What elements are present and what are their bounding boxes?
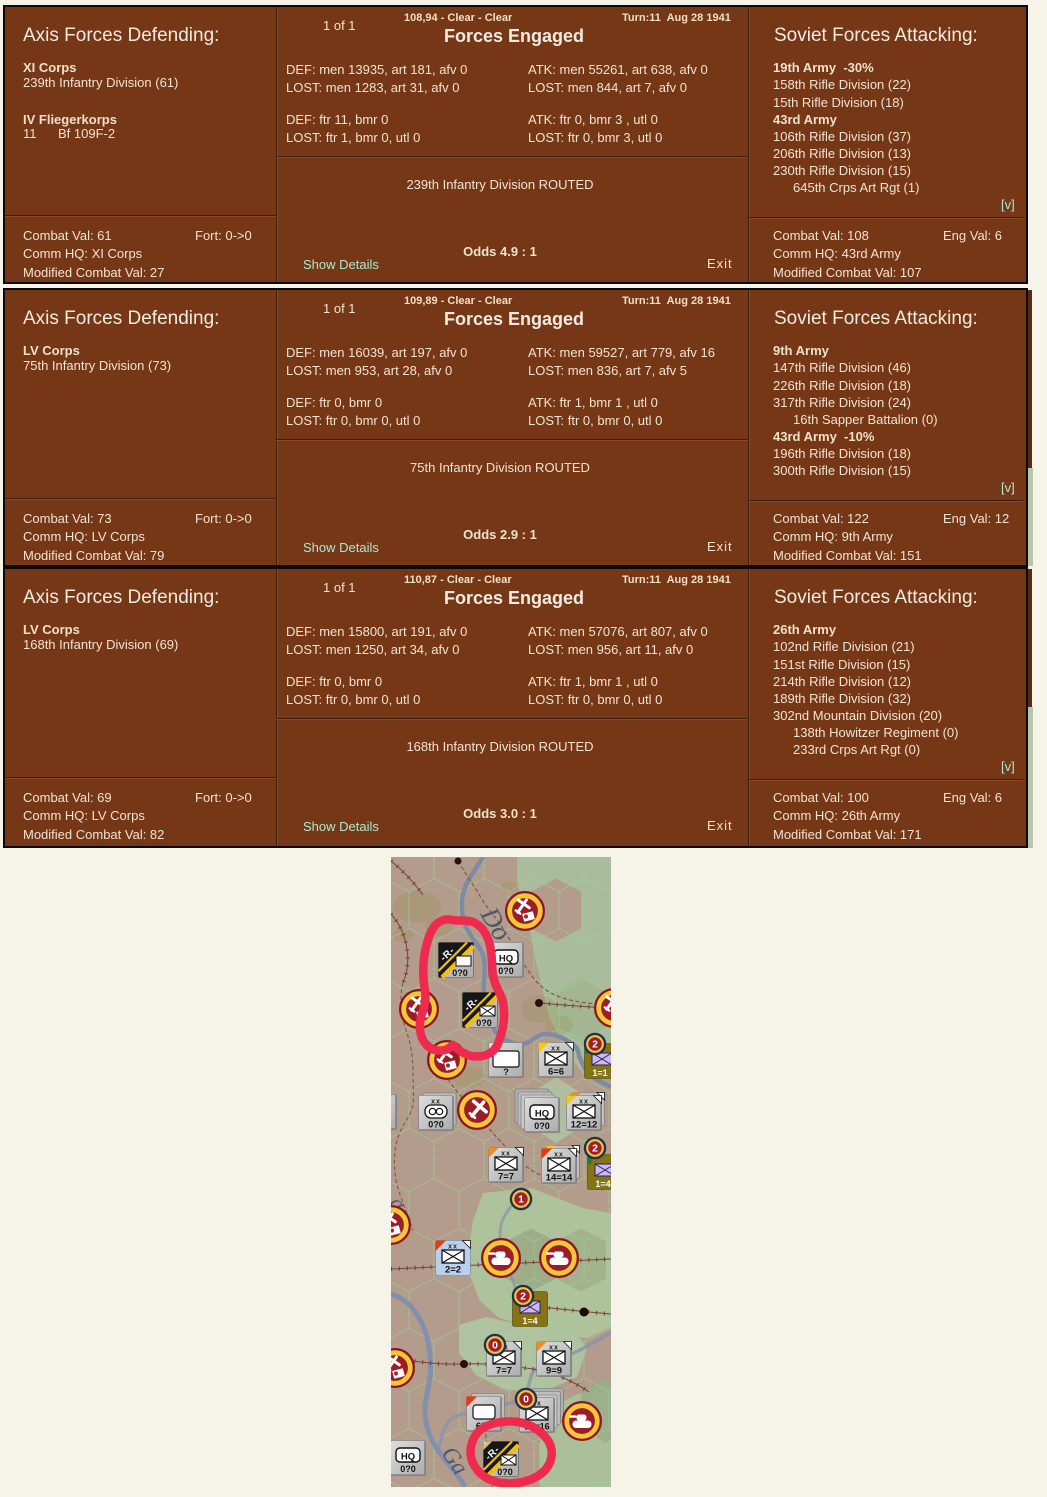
svg-text:14=14: 14=14	[546, 1173, 573, 1184]
svg-text:12=12: 12=12	[571, 1120, 598, 1131]
svg-text:1=4: 1=4	[595, 1179, 610, 1189]
svg-text:0?0: 0?0	[428, 1120, 444, 1130]
svg-text:2: 2	[592, 1143, 598, 1155]
svg-text:2: 2	[520, 1291, 526, 1303]
svg-text:1: 1	[518, 1194, 524, 1206]
svg-text:1=4: 1=4	[522, 1316, 537, 1326]
svg-text:9=9: 9=9	[546, 1366, 562, 1377]
svg-text:0: 0	[492, 1340, 498, 1352]
svg-text:6=6: 6=6	[548, 1067, 564, 1078]
svg-text:0: 0	[523, 1394, 529, 1406]
svg-text:7=7: 7=7	[496, 1366, 512, 1377]
svg-text:?: ?	[503, 1067, 509, 1078]
svg-text:1=1: 1=1	[592, 1068, 607, 1078]
svg-text:2=2: 2=2	[445, 1265, 461, 1276]
svg-text:2: 2	[592, 1039, 598, 1051]
svg-text:7=7: 7=7	[498, 1172, 514, 1183]
